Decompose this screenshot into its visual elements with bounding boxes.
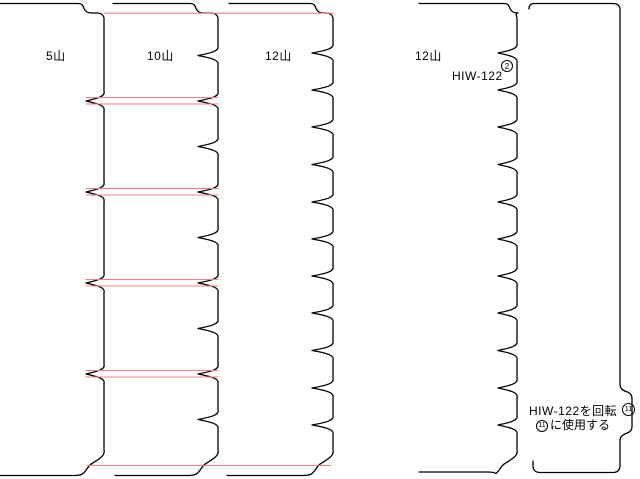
circled-2-badge: 2 <box>501 60 513 72</box>
circled-11-inline-badge: 11 <box>536 420 548 432</box>
strip-4-teeth-label: 12山 <box>415 50 442 63</box>
strip-1-teeth-label: 5山 <box>46 50 66 63</box>
strip-1-outline <box>0 4 104 476</box>
strip-3-teeth-label: 12山 <box>265 50 292 63</box>
rotation-note-line2-text: に使用する <box>550 419 610 432</box>
strip-3-outline <box>227 4 333 476</box>
rotation-note-line2: 11 に使用する <box>536 419 610 432</box>
strip-2-teeth-label: 10山 <box>147 50 174 63</box>
part-number-label: HIW-122 <box>452 70 503 83</box>
strip-2-outline <box>113 4 218 476</box>
comb-strips-drawing: 5山 10山 12山 12山 HIW-122 2 HIW-122を回転 11 に… <box>0 0 640 479</box>
strip-5-outline <box>529 4 632 473</box>
circled-11-corner-badge: 11 <box>622 403 635 416</box>
rotation-note-line1: HIW-122を回転 <box>529 405 617 418</box>
